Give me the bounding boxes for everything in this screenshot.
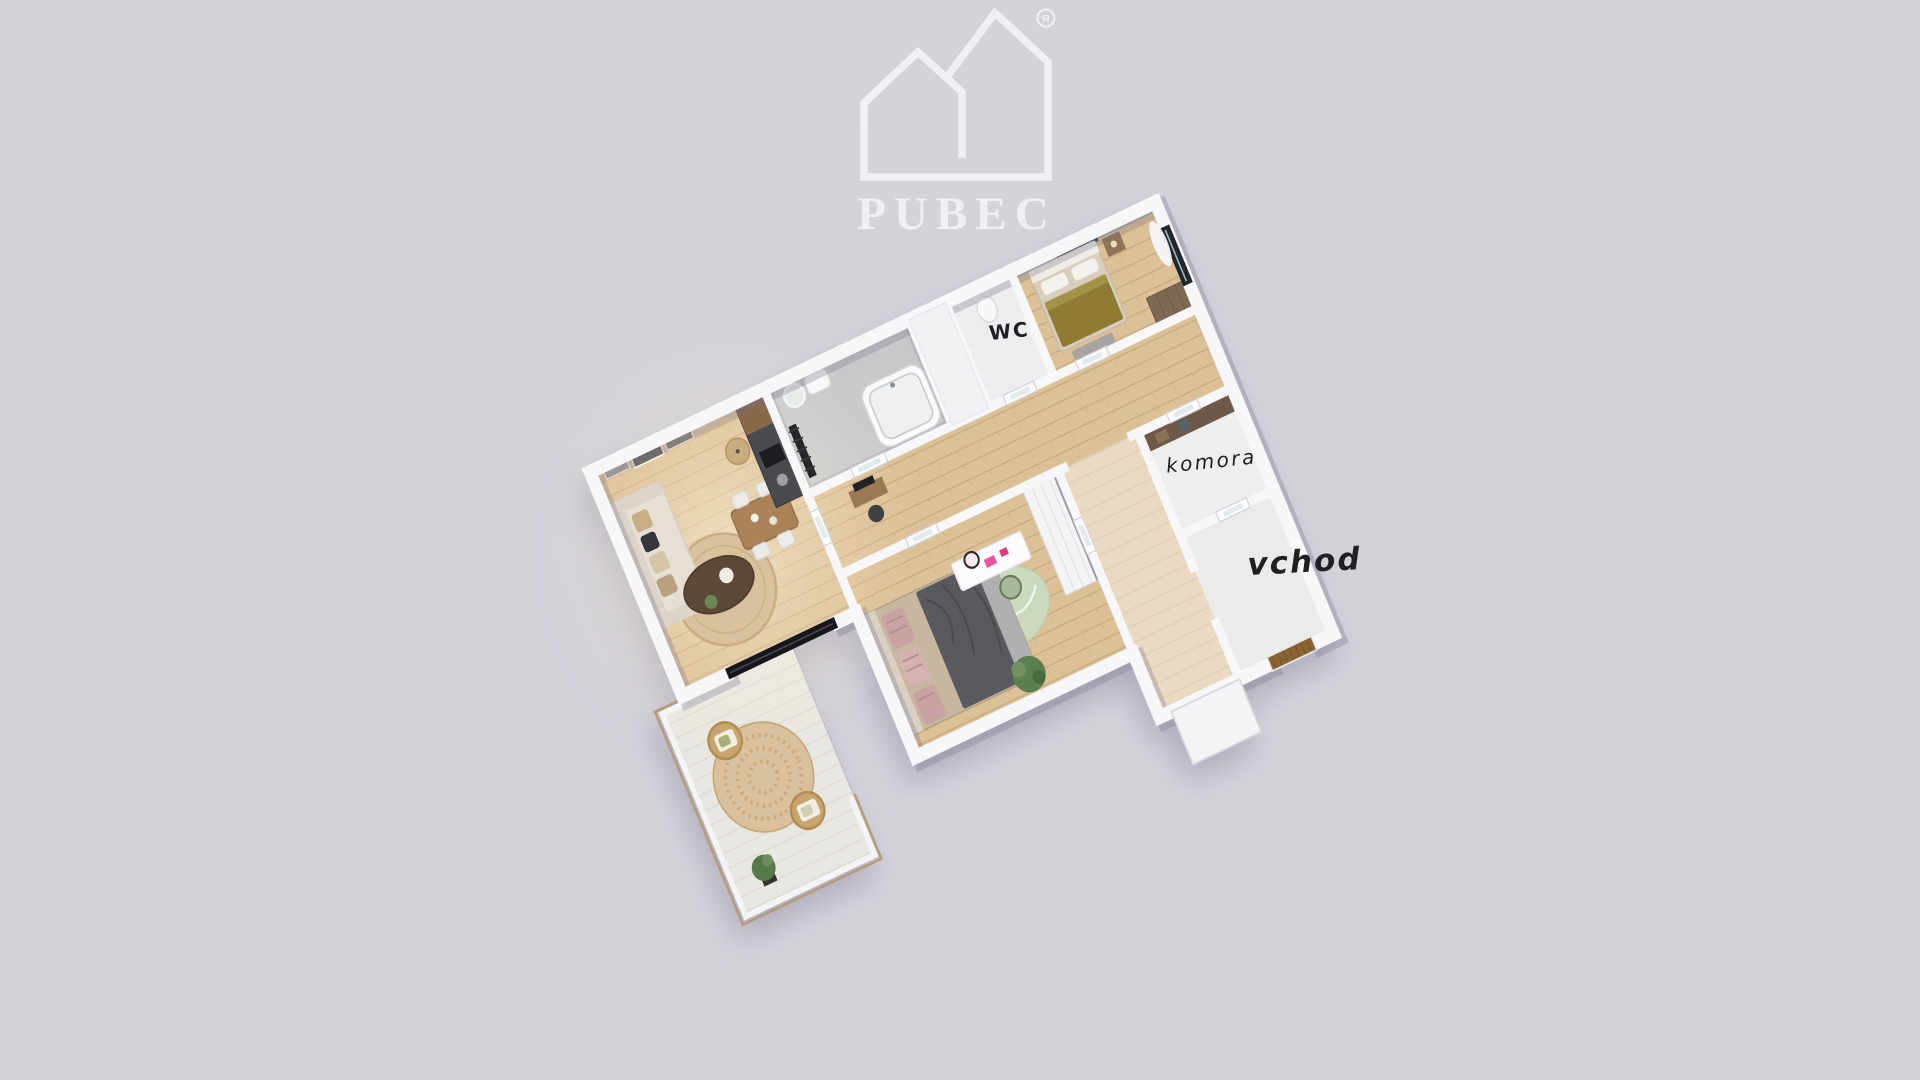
pubec-logo: R PUBEC [857,10,1056,241]
floorplan-scene: R PUBEC [0,0,1920,1080]
floorplan-page: R PUBEC [0,0,1920,1080]
page: { "background_color": "#d5d3da", "brand"… [0,0,1920,1080]
floorplan [481,128,1360,994]
registered-mark-letter: R [1042,13,1050,25]
brand-name: PUBEC [857,188,1056,240]
wc-label: WC [988,317,1031,345]
vchod-label: vchod [1247,541,1363,583]
